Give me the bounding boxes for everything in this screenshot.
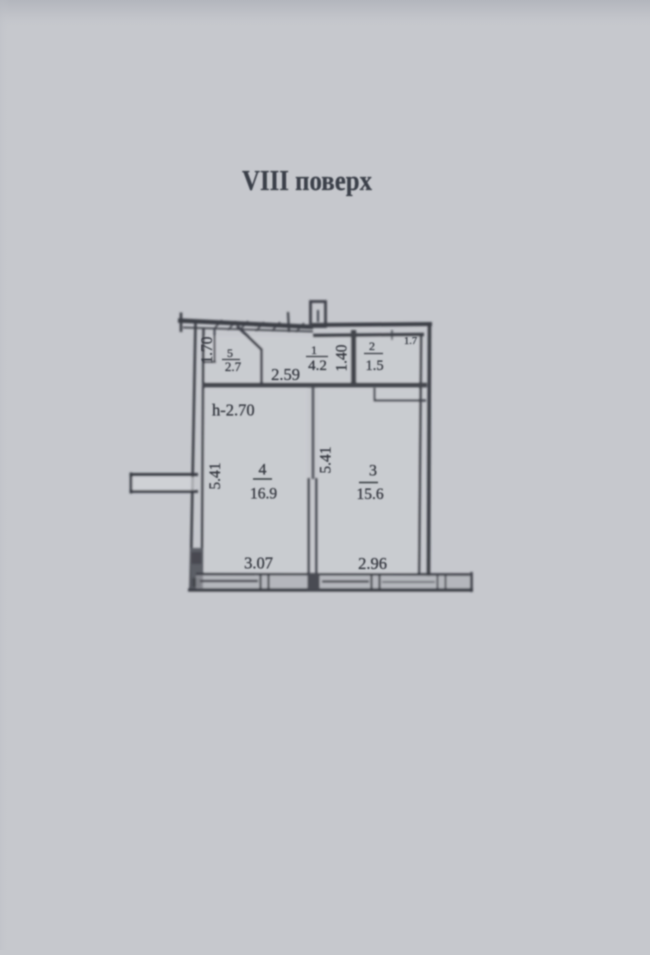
svg-text:16.9: 16.9 xyxy=(250,486,277,503)
svg-text:1: 1 xyxy=(311,343,317,357)
svg-text:h-2.70: h-2.70 xyxy=(212,401,255,420)
svg-text:2.7: 2.7 xyxy=(225,359,242,374)
svg-text:3.07: 3.07 xyxy=(244,554,273,573)
svg-text:5.41: 5.41 xyxy=(318,446,335,473)
svg-text:2: 2 xyxy=(369,339,375,353)
svg-text:15.6: 15.6 xyxy=(356,486,383,503)
svg-text:5: 5 xyxy=(227,346,233,360)
svg-text:4: 4 xyxy=(259,462,267,479)
svg-text:1.5: 1.5 xyxy=(365,358,383,374)
svg-text:VIII поверх: VIII поверх xyxy=(242,165,372,197)
svg-text:5.41: 5.41 xyxy=(207,462,224,489)
svg-text:2.96: 2.96 xyxy=(358,554,387,573)
svg-text:1.70: 1.70 xyxy=(199,336,216,363)
svg-text:1.7: 1.7 xyxy=(404,336,417,347)
svg-text:1.40: 1.40 xyxy=(334,344,351,371)
svg-text:3: 3 xyxy=(369,463,377,480)
svg-text:4.2: 4.2 xyxy=(308,358,327,374)
svg-text:2.59: 2.59 xyxy=(271,365,300,384)
